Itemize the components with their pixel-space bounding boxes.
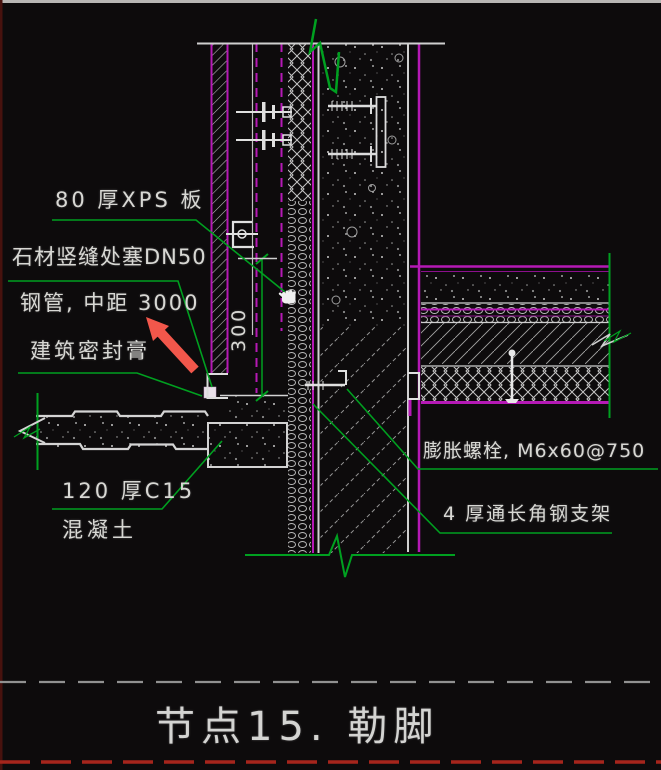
exterior-ground [14, 393, 208, 470]
c15-concrete-block [208, 423, 287, 467]
label-sealant: 建筑密封膏 [30, 335, 150, 365]
cavity-lines [253, 43, 282, 393]
label-stone-joint-1: 石材竖缝处塞DN50 [12, 241, 207, 271]
dimension-300-text: 300 [228, 307, 250, 352]
angle-steel-bracket [408, 373, 419, 416]
red-annotation-arrow [146, 317, 195, 370]
concrete-wall [321, 44, 408, 326]
detail-title: 节点15. 勒脚 [155, 694, 439, 752]
stone-anchor-top [236, 102, 292, 122]
floor-assembly [410, 253, 631, 418]
left-page-edge [0, 0, 3, 770]
stone-anchor-mid [226, 222, 258, 247]
stone-panel [212, 43, 228, 373]
label-xps-board: 80 厚XPS 板 [55, 184, 204, 214]
label-angle-bracket: 4 厚通长角钢支架 [443, 499, 612, 526]
label-expansion-bolt: 膨胀螺栓, M6x60@750 [423, 436, 645, 463]
plinth [204, 374, 288, 467]
foundation-wall-hatch [321, 326, 408, 553]
top-window-edge [0, 0, 661, 3]
detail-drawing-linework [0, 0, 661, 770]
label-c15-concrete-1: 120 厚C15 [62, 475, 195, 505]
label-c15-concrete-2: 混凝土 [62, 514, 137, 544]
cad-drawing-viewport[interactable]: 80 厚XPS 板 石材竖缝处塞DN50 钢管, 中距 3000 建筑密封膏 1… [0, 0, 661, 770]
sealant-bead [204, 387, 216, 398]
leader-sealant [18, 373, 202, 396]
label-stone-joint-2: 钢管, 中距 3000 [20, 287, 199, 317]
stone-anchor-second [236, 130, 292, 150]
